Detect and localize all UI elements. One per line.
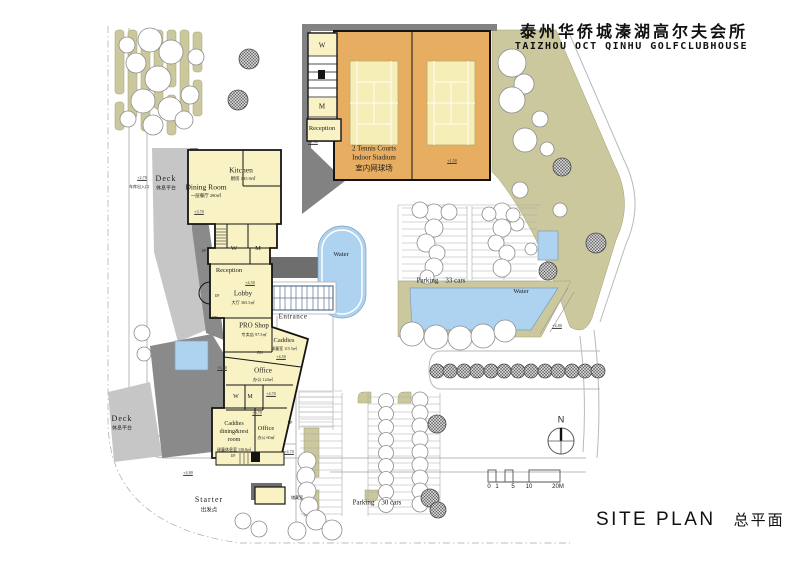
tennis-court-2 — [427, 61, 475, 145]
elevation-mark: +4.70 — [284, 450, 294, 454]
drawing-title-en: SITE PLAN — [596, 509, 716, 531]
elevation-mark: +4.50 — [245, 281, 255, 285]
north-label: N — [558, 416, 565, 425]
label-garage-entry: 车库出入口 — [129, 185, 149, 189]
label-tennis-w: W — [319, 43, 326, 50]
drawing-title-cn: 总平面 — [734, 509, 785, 530]
elevation-mark: +1.50 — [308, 140, 318, 144]
label-parking-33: Parking 33 cars — [417, 278, 466, 285]
site-plan-drawing — [0, 0, 800, 565]
label-wc2-w: W — [233, 394, 239, 400]
scale-tick-5: 5 — [511, 484, 514, 490]
label-reception: Reception — [216, 268, 242, 275]
elevation-mark: +4.80 — [552, 324, 562, 328]
label-entrance: Entrance — [279, 314, 308, 321]
elevation-mark: +4.80 — [183, 471, 193, 475]
label-dining-area: 一层餐厅 280㎡ — [191, 194, 221, 199]
label-wc-m: M — [255, 246, 261, 253]
label-deck-lower: Deck — [112, 415, 133, 423]
label-parking-30: Parking 30 cars — [353, 500, 402, 507]
label-up: UP — [215, 295, 220, 299]
label-tennis-name-2: Indoor Stadium — [352, 155, 396, 162]
label-lobby: Lobby — [234, 291, 252, 298]
label-caddies-room-area: 球童休息室 138.8㎡ — [217, 448, 251, 452]
label-dining-room: Dining Room — [185, 183, 226, 191]
label-starter: Starter — [195, 496, 223, 504]
label-caddies-room-1: Caddies — [224, 421, 243, 427]
label-kitchen-area: 厨房 135.9㎡ — [231, 177, 256, 182]
label-pro-shop: PRO Shop — [239, 323, 269, 330]
elevation-mark: +5.70 — [252, 411, 262, 415]
scale-tick-20m: 20M — [552, 484, 564, 490]
project-title-cn: 泰州华侨城溱湖高尔夫会所 — [520, 18, 748, 42]
scale-tick-0: 0 — [487, 484, 490, 490]
site-plan-canvas: 泰州华侨城溱湖高尔夫会所 TAIZHOU OCT QINHU GOLFCLUBH… — [0, 0, 800, 565]
label-tennis-name-1: 2 Tennis Courts — [352, 146, 396, 153]
label-deck-lower-cn: 休息平台 — [112, 427, 132, 432]
label-tennis-m: M — [319, 104, 325, 111]
elevation-mark: +4.50 — [276, 355, 286, 359]
label-deck-upper-cn: 休息平台 — [156, 187, 176, 192]
label-up: UP — [202, 250, 207, 254]
label-wc-w: W — [231, 246, 237, 253]
label-tennis-reception: Reception — [309, 126, 335, 133]
label-dn: DN — [212, 317, 217, 321]
label-water-strip: Water — [513, 289, 528, 296]
label-pro-shop-area: 专卖店 97.5㎡ — [241, 333, 266, 337]
label-water-pool: Water — [333, 252, 348, 259]
label-office-1-area: 办公 124㎡ — [253, 378, 273, 382]
label-caddies-room-2: dining&rest — [220, 429, 249, 435]
tennis-building — [307, 31, 490, 180]
north-arrow-icon — [548, 428, 574, 454]
starter-hut — [251, 483, 285, 504]
tennis-court-1 — [350, 61, 398, 145]
label-hut: 储藏室 — [291, 496, 303, 500]
scale-tick-1: 1 — [495, 484, 498, 490]
label-office-2-area: 办公 60㎡ — [258, 436, 275, 440]
label-caddies: Caddies — [274, 338, 295, 345]
label-caddies-area: 球童室 115.5㎡ — [271, 347, 297, 351]
label-up: UP — [288, 422, 293, 426]
label-wc2-m: M — [247, 394, 252, 400]
scale-tick-10: 10 — [526, 484, 533, 490]
drawing-title: SITE PLAN 总平面 — [596, 509, 785, 531]
label-office-1: Office — [254, 368, 272, 375]
elevation-mark: +5.70 — [217, 366, 227, 370]
label-up: UP — [231, 455, 236, 459]
label-caddies-room-3: room — [228, 437, 241, 443]
elevation-mark: +1.50 — [447, 159, 457, 163]
elevation-mark: +2.70 — [137, 176, 147, 180]
elevation-mark: +4.70 — [266, 392, 276, 396]
label-office-2: Office — [258, 426, 274, 433]
label-dn: DN — [257, 352, 262, 356]
label-deck-upper: Deck — [156, 175, 177, 183]
label-lobby-area: 大厅 365.5㎡ — [231, 301, 254, 305]
label-tennis-name-cn: 室内网球场 — [355, 164, 393, 172]
label-starter-cn: 出发点 — [201, 508, 218, 514]
elevation-mark: +3.70 — [194, 210, 204, 214]
label-kitchen: Kitchen — [229, 166, 253, 174]
project-title-en: TAIZHOU OCT QINHU GOLFCLUBHOUSE — [515, 41, 748, 52]
